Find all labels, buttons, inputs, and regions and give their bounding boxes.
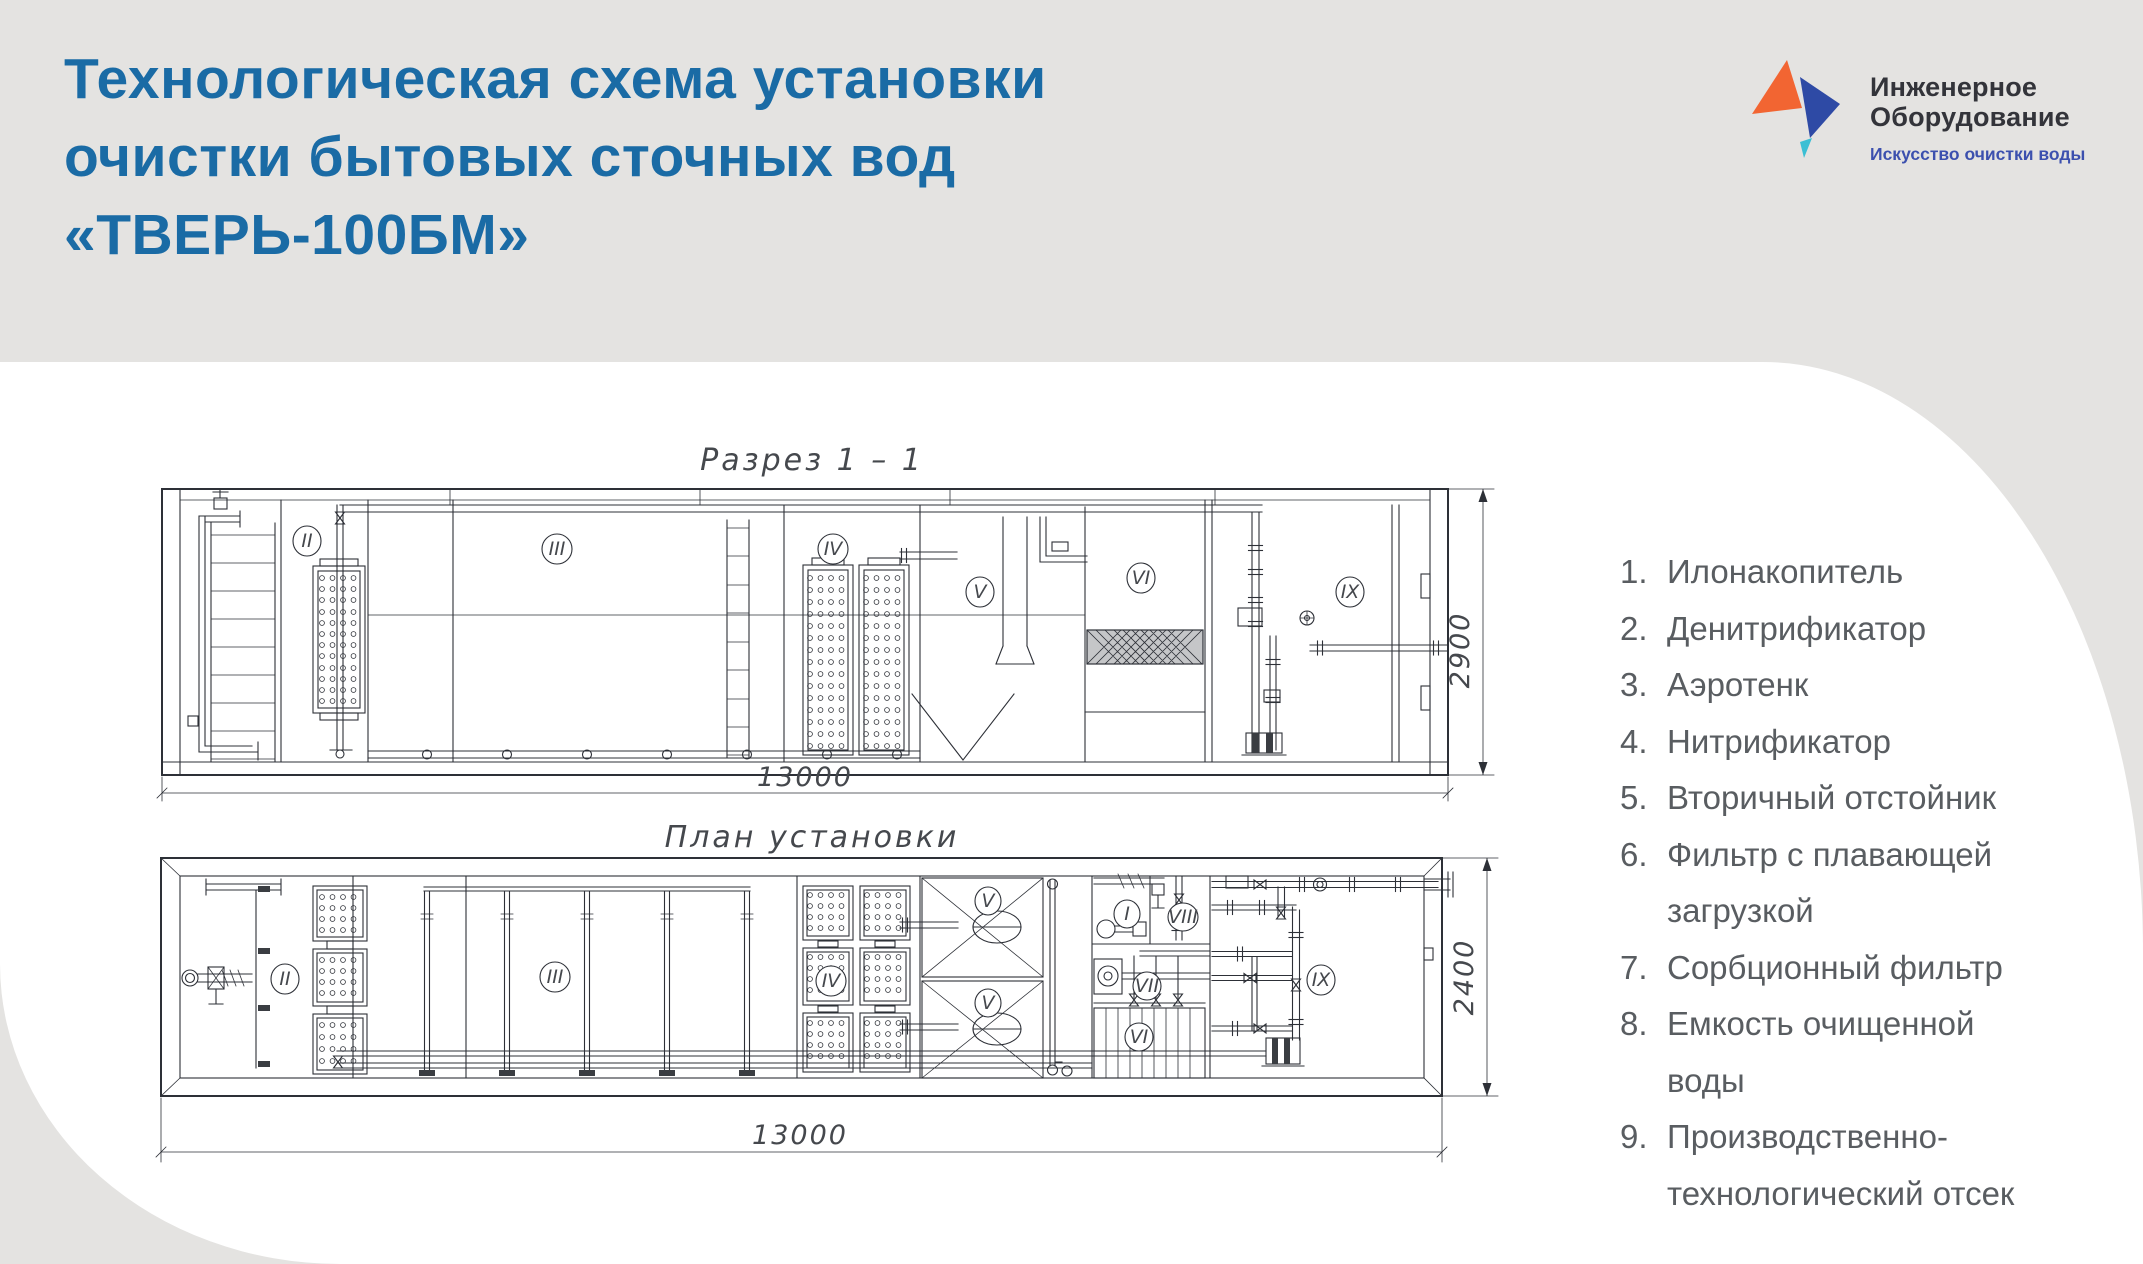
legend-item-label: Илонакопитель (1667, 544, 2040, 601)
company-logo: Инженерное Оборудование Искусство очистк… (1750, 58, 2085, 170)
section-label-ii: II (293, 526, 321, 556)
section-perforated-panels-iv (803, 558, 909, 755)
svg-text:IX: IX (1341, 581, 1361, 603)
legend-item-label: Емкость очищенной воды (1667, 996, 2040, 1109)
legend-item-number: 9. (1620, 1109, 1667, 1222)
legend-item-label: Аэротенк (1667, 657, 2040, 714)
legend-item-number: 5. (1620, 770, 1667, 827)
section-label-iv: IV (818, 534, 848, 564)
section-ladder-middle (727, 520, 749, 758)
legend-item-label: Нитрификатор (1667, 714, 2040, 771)
plan-pump-room-piping (1212, 872, 1453, 1066)
section-compartment-labels: II III IV V VI IX (293, 526, 1364, 607)
legend-item-number: 6. (1620, 827, 1667, 940)
section-filter-vi (1040, 517, 1205, 712)
section-monorail (340, 489, 1262, 512)
section-title: Разрез 1 – 1 (700, 443, 924, 478)
legend-list: 1.Илонакопитель 2.Денитрификатор 3.Аэрот… (1620, 544, 2040, 1222)
svg-text:I: I (1124, 903, 1130, 925)
svg-text:III: III (547, 966, 564, 988)
section-label-ix: IX (1336, 577, 1364, 607)
svg-text:VI: VI (1130, 1026, 1149, 1048)
logo-tagline: Искусство очистки воды (1870, 144, 2085, 165)
plan-label-ii: II (271, 964, 299, 994)
legend-item-label: Производственно-технологический отсек (1667, 1109, 2040, 1222)
plan-corridor-pipes (1048, 879, 1073, 1076)
svg-text:IX: IX (1312, 969, 1332, 991)
svg-text:IV: IV (822, 970, 843, 992)
svg-text:V: V (974, 581, 989, 603)
legend-item: 8.Емкость очищенной воды (1620, 996, 2040, 1109)
title-line-3: «ТВЕРЬ-100БМ» (64, 196, 1047, 274)
plan-label-iv: IV (816, 966, 846, 996)
plan-bottom-pipes (337, 1051, 1266, 1068)
logo-mark-icon (1750, 58, 1852, 170)
plan-label-vi: VI (1125, 1023, 1153, 1051)
section-height-dimension: 2900 (1445, 489, 1494, 775)
svg-text:IV: IV (824, 538, 845, 560)
plan-clarifier-hoppers-v (900, 878, 1043, 1078)
svg-text:II: II (279, 968, 291, 990)
section-drawing: Разрез 1 – 1 (150, 430, 1550, 820)
svg-text:VIII: VIII (1168, 906, 1198, 928)
plan-label-ix: IX (1307, 965, 1335, 995)
legend-item-label: Сорбционный фильтр (1667, 940, 2040, 997)
logo-blue-triangle-icon (1800, 77, 1840, 138)
legend-item: 4.Нитрификатор (1620, 714, 2040, 771)
svg-text:13000: 13000 (752, 1120, 848, 1151)
plan-label-v-lower: V (975, 989, 1001, 1017)
section-outlet-pipe-ix (1310, 574, 1448, 710)
legend-item: 7.Сорбционный фильтр (1620, 940, 2040, 997)
section-label-iii: III (542, 534, 572, 564)
legend-item-number: 1. (1620, 544, 1667, 601)
section-perforated-panel-ii (313, 559, 365, 720)
slide: { "header": { "title_line1": "Технологич… (0, 0, 2143, 1264)
plan-width-dimension: 13000 (156, 1098, 1447, 1162)
section-ladder-left (211, 523, 275, 762)
plan-aeration-risers (419, 887, 755, 1076)
legend-item: 3.Аэротенк (1620, 657, 2040, 714)
plan-label-iii: III (540, 962, 570, 992)
plan-partitions (353, 876, 1210, 1078)
logo-name-line-1: Инженерное (1870, 72, 2085, 102)
svg-text:II: II (301, 530, 313, 552)
svg-text:III: III (549, 538, 566, 560)
legend-item-number: 2. (1620, 601, 1667, 658)
logo-orange-triangle-icon (1752, 60, 1802, 114)
logo-name-line-2: Оборудование (1870, 102, 2085, 132)
title-line-1: Технологическая схема установки (64, 40, 1047, 118)
section-label-v: V (966, 577, 994, 607)
section-width-dimension: 13000 (157, 762, 1453, 801)
svg-text:V: V (982, 890, 997, 912)
svg-text:13000: 13000 (757, 762, 853, 793)
plan-wall-brackets (256, 886, 270, 1068)
svg-text:2400: 2400 (1449, 939, 1480, 1016)
plan-label-v-upper: V (975, 887, 1001, 915)
legend-item: 5.Вторичный отстойник (1620, 770, 2040, 827)
svg-text:2900: 2900 (1445, 612, 1476, 689)
legend-item: 6.Фильтр с плавающей загрузкой (1620, 827, 2040, 940)
legend-item-label: Фильтр с плавающей загрузкой (1667, 827, 2040, 940)
plan-label-i: I (1114, 900, 1140, 928)
plan-perforated-panels-ii (313, 886, 367, 1074)
svg-text:V: V (982, 992, 997, 1014)
legend-item: 1.Илонакопитель (1620, 544, 2040, 601)
plan-height-dimension: 2400 (1442, 858, 1498, 1096)
plan-drawing: План установки (150, 812, 1550, 1180)
section-pump-column (1238, 512, 1314, 755)
legend-item-number: 8. (1620, 996, 1667, 1109)
legend-item-number: 7. (1620, 940, 1667, 997)
section-inlet-pipe (188, 489, 258, 760)
logo-teal-triangle-icon (1800, 138, 1812, 158)
svg-text:VII: VII (1135, 975, 1160, 997)
legend-item-number: 3. (1620, 657, 1667, 714)
plan-label-vii: VII (1133, 972, 1161, 1000)
title-line-2: очистки бытовых сточных вод (64, 118, 1047, 196)
logo-text: Инженерное Оборудование Искусство очистк… (1870, 58, 2085, 170)
plan-inlet-fitting (182, 967, 252, 1004)
legend-item: 9.Производственно-технологический отсек (1620, 1109, 2040, 1222)
section-label-vi: VI (1127, 563, 1155, 593)
page-title: Технологическая схема установки очистки … (64, 40, 1047, 274)
legend-item-label: Денитрификатор (1667, 601, 2040, 658)
legend-item-number: 4. (1620, 714, 1667, 771)
plan-title: План установки (665, 820, 960, 855)
svg-text:VI: VI (1132, 567, 1151, 589)
legend-item-label: Вторичный отстойник (1667, 770, 2040, 827)
plan-label-viii: VIII (1168, 903, 1198, 931)
legend-item: 2.Денитрификатор (1620, 601, 2040, 658)
